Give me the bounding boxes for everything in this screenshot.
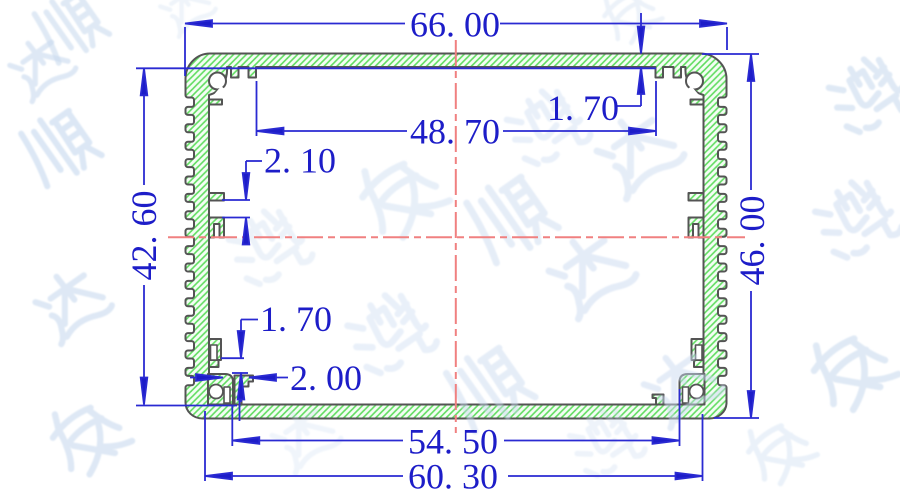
svg-text:2. 00: 2. 00 [290, 358, 362, 398]
svg-text:54. 50: 54. 50 [408, 422, 498, 462]
svg-text:46. 00: 46. 00 [732, 196, 772, 286]
svg-text:60. 30: 60. 30 [408, 457, 498, 497]
svg-text:42. 60: 42. 60 [124, 191, 164, 281]
svg-text:2. 10: 2. 10 [264, 141, 336, 181]
svg-text:66. 00: 66. 00 [410, 5, 500, 45]
svg-text:48. 70: 48. 70 [410, 112, 500, 152]
svg-text:1. 70: 1. 70 [547, 88, 619, 128]
svg-text:1. 70: 1. 70 [260, 299, 332, 339]
